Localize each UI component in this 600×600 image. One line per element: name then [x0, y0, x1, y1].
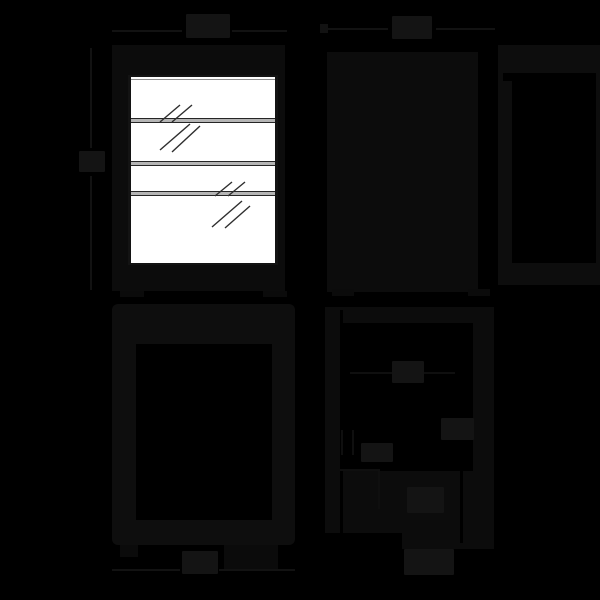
back-width-dim-line-left	[112, 569, 180, 571]
detail-dim-tick-b	[352, 430, 354, 455]
back-inner-panel	[136, 344, 272, 520]
front-foot-right	[263, 291, 287, 297]
back-width-dim-label	[182, 551, 218, 574]
hatch-line-b4	[225, 206, 250, 228]
front-door-reflection-hatches	[128, 75, 278, 265]
detail-dim-label-4	[407, 487, 444, 513]
front-width-dim-line-right	[232, 30, 287, 32]
detail-bottom-dim-label	[404, 549, 454, 575]
side-depth-dim-label	[392, 16, 432, 39]
hatch-line-a2	[172, 105, 192, 122]
hatch-line-a1	[160, 105, 180, 122]
side-cabinet-body	[327, 52, 495, 292]
diagram-canvas	[0, 0, 600, 600]
front-width-dim-label	[186, 14, 230, 38]
detail-inner-extension-line	[460, 471, 463, 543]
hatch-lines	[160, 105, 250, 228]
front-height-dim-line-top	[90, 48, 92, 148]
front-height-dim-line-bottom	[90, 176, 92, 290]
detail-leader-line-h	[340, 469, 380, 471]
side-door-edge	[478, 52, 495, 292]
detail-dim-tick-a	[341, 430, 343, 455]
side-depth-dim-line-right	[436, 28, 495, 30]
detail-dim-label-1	[392, 361, 424, 383]
side-open-door-hinge-notch	[503, 73, 512, 81]
detail-bottom-band	[322, 533, 402, 549]
hatch-line-b3	[212, 201, 242, 227]
hatch-line-a3	[160, 124, 190, 150]
back-foot-left	[120, 545, 138, 557]
front-foot-left	[120, 291, 144, 297]
side-foot-left	[332, 289, 354, 296]
front-height-dim-label	[79, 151, 105, 172]
back-width-dim-line-right	[219, 569, 295, 571]
front-width-dim-line-left	[112, 30, 182, 32]
detail-dim-label-3	[361, 443, 393, 462]
side-foot-right	[468, 289, 490, 296]
side-open-door-panel	[512, 73, 596, 263]
detail-dim-label-2	[441, 418, 474, 440]
detail-leader-line-v	[378, 469, 380, 509]
back-compressor	[224, 545, 278, 569]
side-depth-dim-line-left	[328, 28, 388, 30]
side-depth-dim-tick	[320, 24, 328, 33]
hatch-line-a4	[172, 126, 200, 152]
